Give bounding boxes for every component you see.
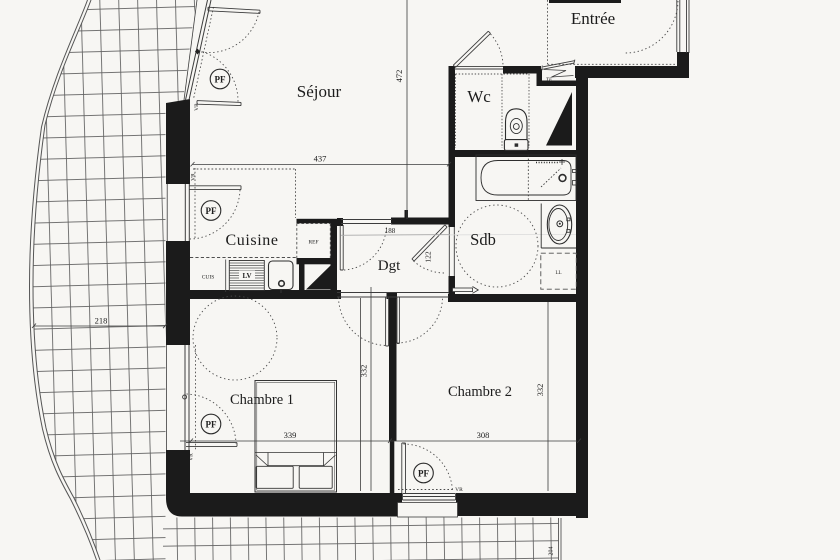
svg-text:472: 472 bbox=[394, 70, 404, 83]
svg-text:VR: VR bbox=[194, 103, 200, 111]
svg-text:PF: PF bbox=[206, 206, 217, 216]
svg-text:PF: PF bbox=[206, 420, 217, 430]
svg-text:Sdb: Sdb bbox=[470, 230, 496, 249]
svg-text:REF: REF bbox=[308, 240, 318, 246]
svg-text:TE: TE bbox=[546, 77, 553, 83]
svg-text:VR: VR bbox=[191, 173, 197, 181]
svg-text:Cuisine: Cuisine bbox=[225, 232, 278, 249]
svg-text:Chambre 1: Chambre 1 bbox=[230, 392, 294, 408]
svg-text:CUIS: CUIS bbox=[202, 275, 215, 281]
svg-text:437: 437 bbox=[314, 154, 327, 164]
svg-text:LV: LV bbox=[242, 272, 251, 280]
svg-text:122: 122 bbox=[424, 251, 433, 263]
svg-text:332: 332 bbox=[535, 384, 545, 397]
svg-text:PF: PF bbox=[215, 75, 226, 85]
svg-text:LL: LL bbox=[555, 271, 561, 276]
svg-text:204: 204 bbox=[549, 547, 555, 556]
svg-text:188: 188 bbox=[385, 227, 396, 235]
svg-text:339: 339 bbox=[284, 430, 297, 440]
svg-text:VR: VR bbox=[455, 487, 463, 493]
svg-text:308: 308 bbox=[477, 430, 490, 440]
svg-text:PF: PF bbox=[418, 469, 429, 479]
svg-text:Chambre 2: Chambre 2 bbox=[448, 384, 512, 400]
svg-text:Wc: Wc bbox=[467, 87, 491, 106]
svg-text:Entrée: Entrée bbox=[571, 9, 615, 28]
svg-text:VR: VR bbox=[189, 453, 195, 461]
svg-text:218: 218 bbox=[95, 316, 108, 326]
svg-text:332: 332 bbox=[359, 365, 369, 378]
svg-text:Dgt: Dgt bbox=[378, 258, 401, 274]
svg-text:Séjour: Séjour bbox=[297, 82, 342, 101]
